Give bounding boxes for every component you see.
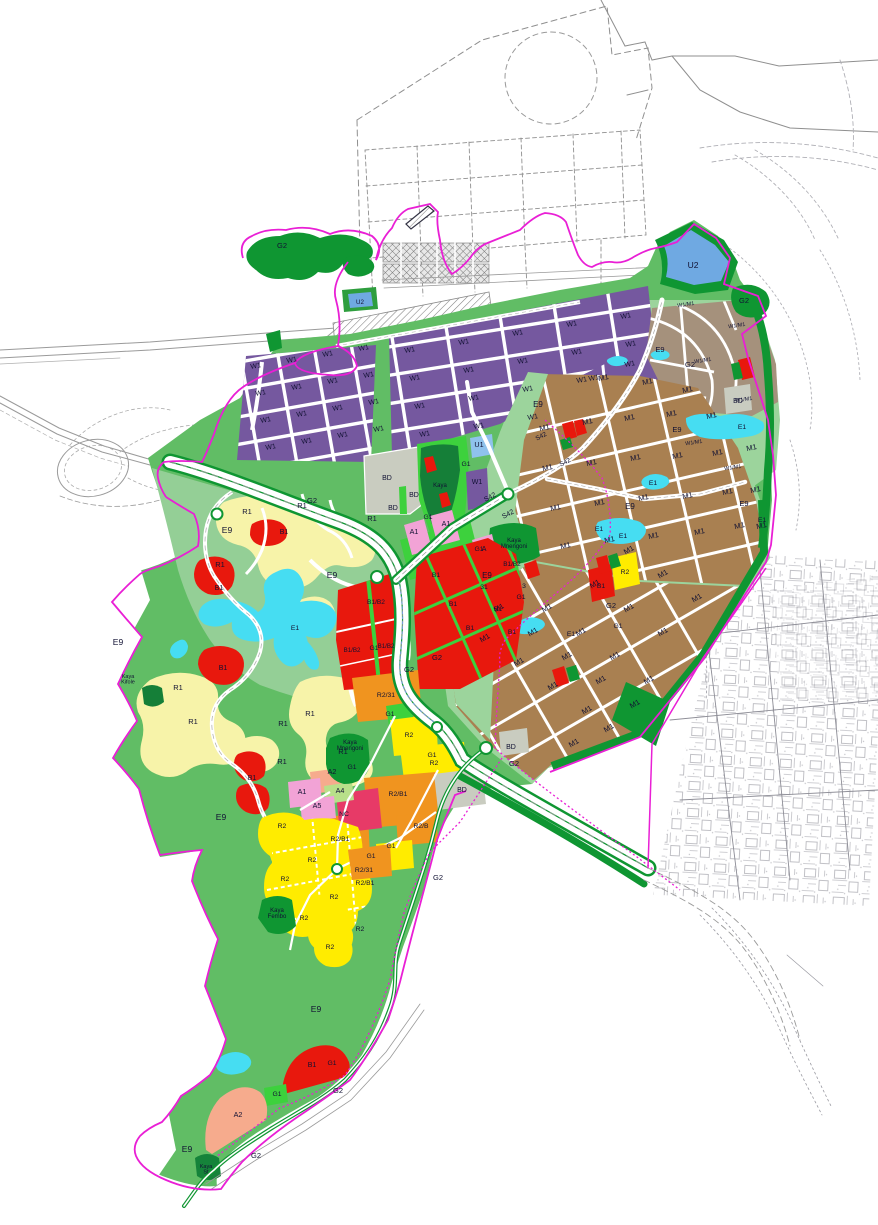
svg-text:E9: E9: [222, 525, 233, 535]
svg-text:A1: A1: [298, 787, 307, 796]
svg-text:A4: A4: [336, 786, 345, 795]
svg-text:B1: B1: [597, 583, 606, 590]
svg-text:G2: G2: [404, 665, 414, 674]
svg-text:B1: B1: [248, 775, 257, 782]
svg-text:St: St: [203, 1170, 209, 1176]
svg-text:G1: G1: [427, 752, 436, 759]
svg-text:R2/31: R2/31: [355, 867, 373, 874]
svg-text:R1: R1: [173, 683, 183, 692]
svg-text:E1: E1: [758, 517, 767, 524]
svg-text:R2: R2: [308, 857, 317, 864]
svg-text:G2: G2: [685, 360, 695, 369]
svg-text:3: 3: [522, 583, 526, 590]
svg-text:R2/B1: R2/B1: [389, 791, 408, 798]
svg-text:U2: U2: [356, 299, 364, 306]
svg-text:E9: E9: [182, 1144, 193, 1154]
svg-text:NC: NC: [339, 811, 349, 818]
svg-text:B1: B1: [432, 572, 441, 579]
svg-text:R1: R1: [242, 507, 252, 516]
svg-text:G2: G2: [307, 496, 317, 505]
svg-text:BD: BD: [382, 475, 392, 482]
svg-text:E9: E9: [311, 1004, 322, 1014]
svg-text:R2: R2: [356, 926, 365, 933]
svg-text:E9: E9: [739, 499, 748, 508]
svg-text:R2: R2: [300, 915, 309, 922]
svg-text:31: 31: [480, 584, 488, 591]
svg-text:BD: BD: [409, 492, 419, 499]
svg-text:R1: R1: [277, 757, 287, 766]
svg-text:E9: E9: [672, 425, 681, 434]
svg-text:G2: G2: [606, 601, 616, 610]
svg-text:E1: E1: [619, 533, 628, 540]
svg-text:G2: G2: [739, 296, 749, 305]
svg-text:R2: R2: [326, 944, 335, 951]
svg-text:R2: R2: [621, 569, 630, 576]
svg-text:G1: G1: [386, 843, 395, 850]
svg-text:B1: B1: [215, 585, 224, 592]
svg-text:E9: E9: [533, 400, 543, 409]
svg-text:Kifole: Kifole: [121, 680, 135, 686]
svg-text:R2/B1: R2/B1: [331, 836, 350, 843]
svg-text:Kaya: Kaya: [433, 483, 447, 489]
svg-text:G2: G2: [251, 1151, 261, 1160]
svg-text:R1: R1: [305, 709, 315, 718]
svg-text:BD: BD: [457, 787, 467, 794]
svg-text:A2: A2: [328, 767, 337, 776]
svg-text:R1: R1: [215, 560, 225, 569]
svg-text:A5: A5: [313, 801, 322, 810]
svg-text:G1: G1: [613, 623, 622, 630]
svg-text:E1: E1: [291, 625, 300, 632]
svg-text:G1: G1: [369, 645, 378, 652]
svg-text:G1: G1: [516, 594, 525, 601]
svg-text:E9: E9: [625, 502, 635, 511]
svg-text:G2: G2: [432, 653, 442, 662]
svg-text:R2: R2: [330, 894, 339, 901]
svg-text:R1: R1: [278, 719, 288, 728]
svg-text:U1: U1: [474, 440, 483, 449]
svg-text:B1: B1: [494, 606, 503, 613]
svg-text:R2: R2: [278, 823, 287, 830]
svg-text:G1: G1: [272, 1091, 281, 1098]
svg-text:A: A: [482, 544, 487, 553]
svg-text:E9: E9: [113, 637, 124, 647]
svg-text:Mnengoni: Mnengoni: [501, 544, 527, 550]
svg-text:U2: U2: [688, 260, 699, 270]
svg-text:R2: R2: [430, 760, 439, 767]
svg-text:A2: A2: [234, 1110, 243, 1119]
svg-text:G1: G1: [347, 764, 356, 771]
svg-text:E9: E9: [327, 570, 338, 580]
svg-text:B1/B2: B1/B2: [344, 647, 361, 654]
svg-text:B1: B1: [219, 665, 228, 672]
svg-text:E9: E9: [655, 345, 664, 354]
svg-text:BD: BD: [733, 398, 743, 405]
svg-text:E1: E1: [595, 526, 604, 533]
svg-text:G1: G1: [327, 1060, 336, 1067]
svg-text:Fembo: Fembo: [268, 914, 287, 920]
svg-text:BD: BD: [506, 744, 516, 751]
svg-text:B1/B2: B1/B2: [378, 643, 395, 650]
svg-text:R2: R2: [281, 876, 290, 883]
svg-text:R1: R1: [367, 514, 377, 523]
svg-text:W1: W1: [472, 479, 483, 486]
svg-text:B1: B1: [308, 1062, 317, 1069]
svg-text:R1: R1: [188, 717, 198, 726]
svg-text:G1: G1: [423, 514, 432, 521]
svg-text:E1: E1: [738, 424, 747, 431]
svg-text:E9: E9: [216, 812, 227, 822]
svg-text:G2: G2: [333, 1086, 343, 1095]
svg-text:E1: E1: [567, 631, 576, 638]
svg-text:B1/B2: B1/B2: [367, 599, 385, 606]
svg-text:BD: BD: [388, 505, 398, 512]
svg-text:R2/B: R2/B: [413, 823, 429, 830]
svg-text:G2: G2: [509, 759, 519, 768]
svg-text:B1: B1: [280, 529, 289, 536]
svg-text:R1: R1: [297, 501, 307, 510]
svg-text:E9: E9: [482, 571, 492, 580]
svg-text:B1: B1: [508, 629, 517, 636]
svg-text:A1: A1: [442, 519, 451, 528]
svg-text:G1: G1: [461, 461, 470, 468]
svg-text:R2: R2: [405, 732, 414, 739]
svg-text:G2: G2: [433, 873, 443, 882]
svg-text:R2/31: R2/31: [377, 692, 395, 699]
svg-text:G1: G1: [366, 853, 375, 860]
svg-text:G1: G1: [385, 711, 394, 718]
svg-text:Mnengoni: Mnengoni: [337, 746, 363, 752]
svg-text:B1/B2: B1/B2: [503, 561, 521, 568]
svg-text:E1: E1: [649, 480, 658, 487]
svg-text:R2/B1: R2/B1: [356, 880, 375, 887]
svg-text:B1: B1: [449, 601, 458, 608]
svg-text:G2: G2: [277, 241, 287, 250]
svg-text:B1: B1: [466, 625, 475, 632]
svg-text:A1: A1: [410, 527, 419, 536]
